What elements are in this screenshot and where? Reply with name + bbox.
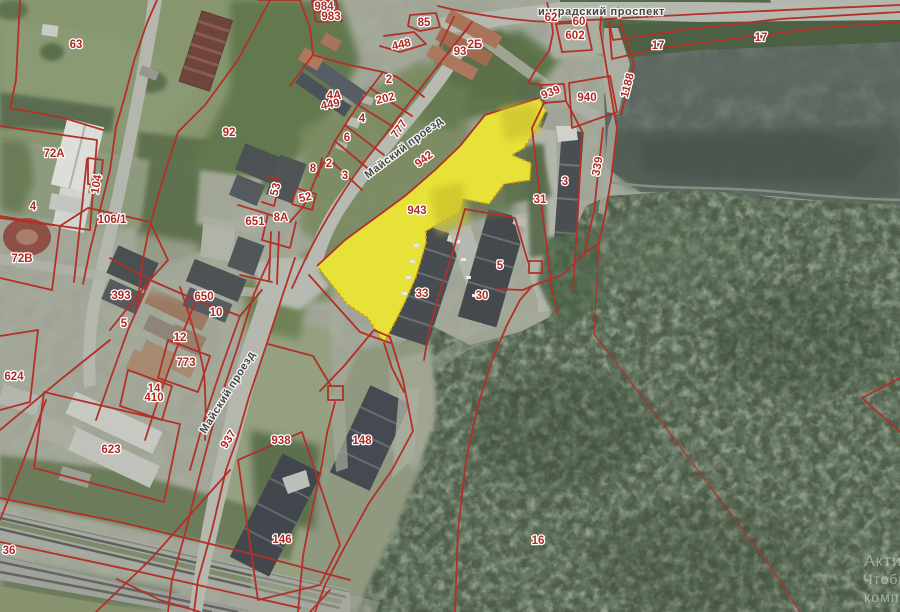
svg-text:938: 938 — [271, 435, 291, 447]
svg-text:93: 93 — [454, 46, 467, 58]
svg-text:комп: комп — [864, 589, 899, 605]
svg-text:5: 5 — [121, 318, 128, 330]
svg-text:651: 651 — [245, 216, 265, 228]
svg-text:4: 4 — [30, 201, 37, 213]
svg-text:12: 12 — [174, 332, 187, 344]
svg-text:36: 36 — [3, 545, 16, 557]
svg-text:624: 624 — [4, 371, 24, 383]
svg-text:2: 2 — [386, 74, 392, 86]
svg-text:Чтобы: Чтобы — [863, 571, 900, 587]
svg-text:8: 8 — [310, 163, 317, 175]
svg-text:3: 3 — [562, 176, 568, 188]
svg-text:940: 940 — [577, 92, 596, 104]
svg-text:16: 16 — [532, 535, 545, 547]
svg-text:3: 3 — [342, 170, 348, 182]
svg-text:92: 92 — [223, 127, 236, 139]
svg-text:33: 33 — [416, 288, 429, 300]
svg-text:62: 62 — [545, 12, 558, 24]
svg-text:17: 17 — [652, 40, 665, 52]
svg-text:85: 85 — [418, 17, 431, 29]
svg-text:148: 148 — [352, 435, 372, 447]
svg-text:63: 63 — [70, 39, 83, 51]
svg-text:2Б: 2Б — [468, 39, 483, 51]
svg-text:983: 983 — [321, 11, 340, 23]
svg-text:773: 773 — [176, 357, 195, 369]
svg-text:6: 6 — [344, 132, 350, 144]
svg-text:17: 17 — [755, 32, 768, 44]
svg-text:623: 623 — [101, 444, 120, 456]
svg-text:2: 2 — [326, 158, 332, 170]
svg-text:650: 650 — [194, 291, 213, 303]
svg-text:31: 31 — [534, 194, 547, 206]
svg-text:146: 146 — [272, 534, 291, 546]
svg-text:393: 393 — [111, 290, 130, 302]
svg-text:60: 60 — [573, 16, 586, 28]
svg-text:30: 30 — [476, 290, 489, 302]
svg-text:Акти: Акти — [864, 553, 900, 570]
svg-text:5: 5 — [497, 260, 504, 272]
svg-text:602: 602 — [565, 30, 584, 42]
svg-text:106/1: 106/1 — [98, 214, 127, 226]
svg-text:4: 4 — [359, 113, 366, 125]
svg-text:72В: 72В — [11, 253, 32, 265]
svg-text:72А: 72А — [43, 148, 64, 160]
svg-text:410: 410 — [144, 392, 163, 404]
svg-text:8А: 8А — [274, 212, 289, 224]
svg-text:10: 10 — [210, 307, 223, 319]
svg-text:943: 943 — [407, 205, 426, 217]
